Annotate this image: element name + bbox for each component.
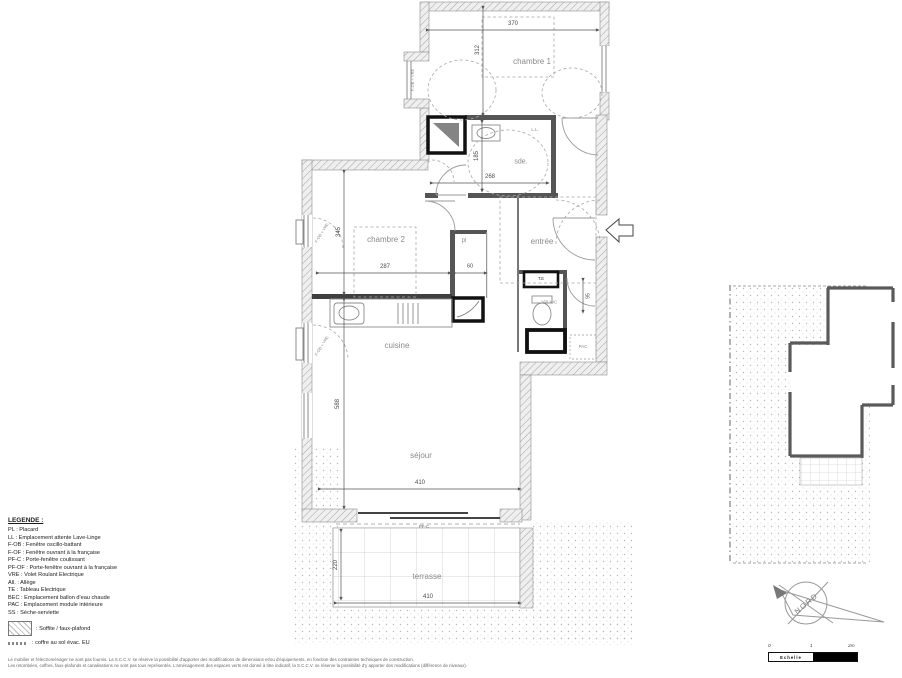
legend-item: PF-OF : Porte-fenêtre ouvrant à la franç…	[8, 565, 308, 573]
scale-bar-label: Echelle	[769, 653, 813, 661]
label-pac: PAC	[579, 345, 588, 349]
legend-item: TE : Tableau Electrique	[8, 587, 308, 595]
room-label-wc: 160 WC	[541, 301, 558, 306]
legend-item: VRE : Volet Roulant Electrique	[8, 572, 308, 580]
room-label-chambre2: chambre 2	[367, 236, 405, 244]
soffite-label: : Soffite / faux-plafond	[36, 626, 90, 632]
room-label-sejour: séjour	[410, 452, 432, 460]
label-ll: L.L.	[531, 128, 538, 132]
legend-item: All. : Allège	[8, 580, 308, 588]
legend-item: SS : Sèche-serviette	[8, 610, 308, 618]
compass: NORD	[773, 582, 884, 624]
scale-bar-black-half	[813, 653, 857, 661]
key-plan	[730, 285, 893, 563]
window-label-3: F-OB + VRE	[411, 69, 415, 91]
soffite-hatch-swatch	[8, 621, 32, 636]
dim-185: 185	[474, 151, 480, 161]
dim-60: 60	[467, 264, 473, 270]
room-label-sde: sde.	[514, 159, 527, 166]
label-te: T.E	[538, 277, 544, 281]
dim-410-terrasse: 410	[423, 594, 433, 600]
dim-345: 345	[336, 227, 342, 237]
legend-item: LL : Emplacement attente Lave-Linge	[8, 535, 308, 543]
dim-410-sejour: 410	[415, 480, 425, 486]
coffre-line-swatch	[8, 642, 28, 645]
dim-268: 268	[485, 174, 495, 180]
scale-tick-2m: 2m	[848, 644, 855, 649]
legend-item: PL : Placard	[8, 527, 308, 535]
scale-bar: 0 1 2m Echelle	[768, 644, 860, 666]
exterior-walls	[302, 2, 609, 522]
legend: LEGENDE : PL : Placard LL : Emplacement …	[8, 517, 308, 646]
entry-arrow	[606, 219, 633, 242]
legend-item: PF-C : Porte-fenêtre coulissant	[8, 557, 308, 565]
scale-tick-1: 1	[810, 644, 813, 649]
scale-bar-graphic: Echelle	[768, 652, 858, 662]
dim-588: 588	[335, 399, 341, 409]
coffre-label: : coffre au sol évac. EU	[32, 640, 90, 646]
label-pfc: PF-C	[419, 525, 429, 529]
dim-220: 220	[333, 560, 339, 570]
room-label-entree: entrée	[531, 238, 554, 246]
disclaimer: Le mobilier et l'électroménager ne sont …	[8, 657, 528, 668]
disclaimer-line-2: Les retombées, coffres, faux-plafonds et…	[8, 663, 528, 669]
legend-item: BEC : Emplacement ballon d'eau chaude	[8, 595, 308, 603]
dim-312: 312	[475, 45, 481, 55]
scale-tick-0: 0	[768, 644, 771, 649]
legend-item: F-OB : Fenêtre oscillo-battant	[8, 542, 308, 550]
dim-287: 287	[380, 264, 390, 270]
room-label-chambre1: chambre 1	[513, 58, 551, 66]
legend-item: F-OF : Fenêtre ouvrant à la française	[8, 550, 308, 558]
dim-370: 370	[508, 21, 518, 27]
legend-title: LEGENDE :	[8, 517, 308, 524]
room-label-pl: pl	[462, 238, 467, 244]
room-label-cuisine: cuisine	[385, 342, 410, 350]
dim-95: 95	[587, 293, 592, 299]
legend-item: PAC : Emplacement module intérieure	[8, 602, 308, 610]
floorplan-page: NORD chambre 1 sde. chambre 2 pl entrée …	[0, 0, 902, 678]
room-label-terrasse: terrasse	[413, 573, 442, 581]
